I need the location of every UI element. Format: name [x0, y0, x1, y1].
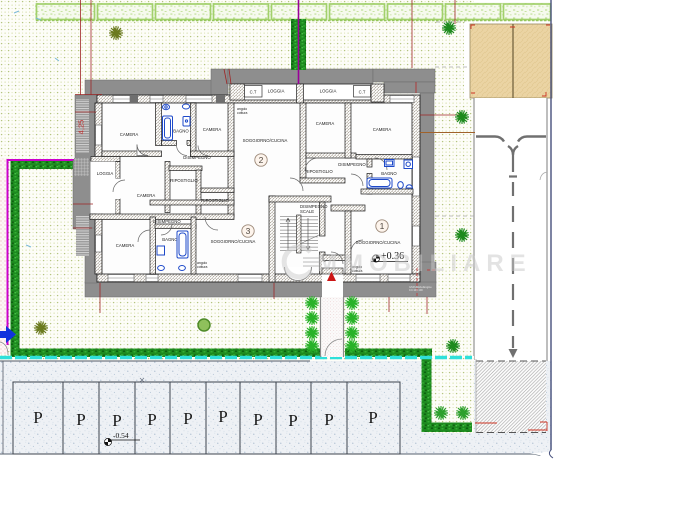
svg-text:DISIMPEGNO: DISIMPEGNO — [183, 155, 211, 160]
svg-text:CAMERA: CAMERA — [116, 243, 135, 248]
svg-text:3: 3 — [246, 226, 251, 236]
svg-text:0.0.100.100: 0.0.100.100 — [409, 288, 423, 292]
svg-text:BAGNO: BAGNO — [173, 129, 189, 134]
svg-text:BAGNO: BAGNO — [381, 171, 397, 176]
svg-text:cottura: cottura — [197, 265, 207, 269]
svg-text:P: P — [368, 408, 377, 427]
svg-text:C.T: C.T — [359, 90, 366, 95]
svg-text:P: P — [33, 408, 42, 427]
svg-text:RIPOSTIGLIO: RIPOSTIGLIO — [305, 169, 333, 174]
svg-text:P: P — [253, 410, 262, 429]
svg-text:P: P — [76, 410, 85, 429]
svg-text:LOGGIA: LOGGIA — [268, 89, 285, 94]
svg-text:cottura: cottura — [237, 111, 247, 115]
svg-text:P: P — [288, 411, 297, 430]
svg-text:P: P — [218, 407, 227, 426]
svg-text:4,25: 4,25 — [77, 120, 86, 135]
svg-text:DISIMPEGNO: DISIMPEGNO — [153, 219, 181, 224]
svg-text:DISIMPEGNO: DISIMPEGNO — [338, 162, 366, 167]
svg-text:P: P — [147, 410, 156, 429]
svg-text:P: P — [112, 411, 121, 430]
svg-text:CAMERA: CAMERA — [137, 193, 156, 198]
svg-text:P: P — [324, 410, 333, 429]
svg-text:CAMERA: CAMERA — [203, 127, 222, 132]
svg-text:1: 1 — [380, 221, 385, 231]
svg-text:-0.54: -0.54 — [113, 431, 129, 440]
svg-text:CAMERA: CAMERA — [373, 127, 392, 132]
svg-text:RIPOSTIGLIO: RIPOSTIGLIO — [170, 178, 198, 183]
svg-text:MMOBILIARE: MMOBILIARE — [317, 250, 532, 277]
svg-text:RIPOSTIGLIO: RIPOSTIGLIO — [201, 198, 229, 203]
svg-text:2: 2 — [259, 155, 264, 165]
svg-text:LOGGIA: LOGGIA — [97, 171, 114, 176]
svg-text:C.T: C.T — [250, 90, 257, 95]
svg-text:SOGGIORNO/CUCINA: SOGGIORNO/CUCINA — [211, 239, 256, 244]
svg-text:LOGGIA: LOGGIA — [320, 89, 337, 94]
svg-text:CAMERA: CAMERA — [316, 121, 335, 126]
svg-text:SOGGIORNO/CUCINA: SOGGIORNO/CUCINA — [356, 240, 401, 245]
svg-text:SCALE: SCALE — [300, 209, 314, 214]
svg-text:P: P — [183, 409, 192, 428]
svg-text:BAGNO: BAGNO — [162, 237, 178, 242]
svg-text:CAMERA: CAMERA — [120, 132, 139, 137]
svg-text:SOGGIORNO/CUCINA: SOGGIORNO/CUCINA — [243, 138, 288, 143]
